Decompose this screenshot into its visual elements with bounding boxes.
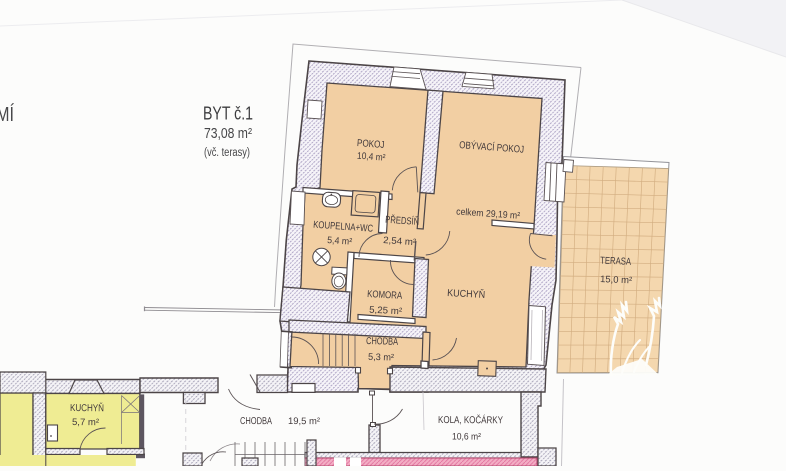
- svg-text:(vč. terasy): (vč. terasy): [204, 147, 250, 159]
- svg-text:KOMORA: KOMORA: [367, 289, 403, 302]
- svg-text:5,25 m²: 5,25 m²: [369, 305, 403, 318]
- svg-text:15,0 m²: 15,0 m²: [600, 274, 632, 286]
- svg-text:2,54 m²: 2,54 m²: [383, 235, 417, 248]
- svg-text:BYT č.1: BYT č.1: [203, 104, 253, 124]
- svg-text:CHODBA: CHODBA: [240, 416, 272, 427]
- svg-text:10,6 m²: 10,6 m²: [452, 432, 481, 443]
- svg-text:MÍ: MÍ: [0, 103, 14, 126]
- svg-text:10,4 m²: 10,4 m²: [357, 151, 386, 164]
- svg-text:POKOJ: POKOJ: [357, 138, 385, 151]
- svg-text:5,3 m²: 5,3 m²: [368, 352, 394, 364]
- svg-text:KUCHYŇ: KUCHYŇ: [70, 401, 104, 414]
- svg-text:19,5 m²: 19,5 m²: [288, 416, 320, 427]
- svg-text:5,4 m²: 5,4 m²: [327, 235, 353, 248]
- svg-text:CHODBA: CHODBA: [366, 336, 399, 348]
- svg-text:TERASA: TERASA: [600, 256, 632, 268]
- svg-text:73,08 m²: 73,08 m²: [204, 126, 252, 142]
- svg-text:KOLA, KOČÁRKY: KOLA, KOČÁRKY: [438, 413, 503, 426]
- svg-text:5,7 m²: 5,7 m²: [72, 417, 99, 428]
